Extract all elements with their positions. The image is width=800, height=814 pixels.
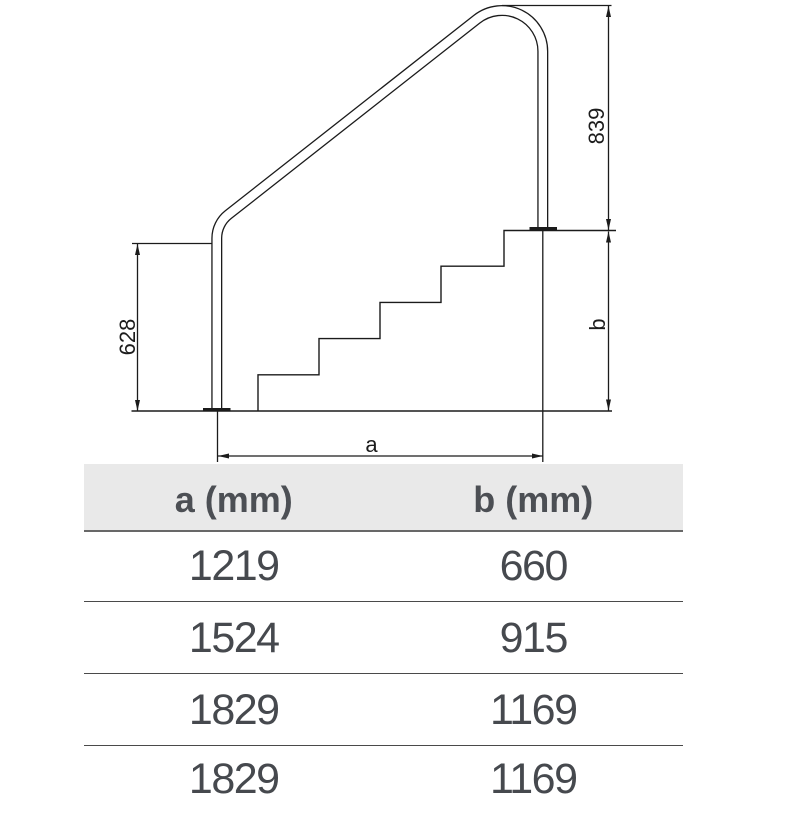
svg-text:b: b (585, 318, 610, 330)
svg-text:839: 839 (584, 108, 609, 145)
svg-text:a: a (365, 432, 378, 457)
svg-text:628: 628 (115, 319, 140, 356)
